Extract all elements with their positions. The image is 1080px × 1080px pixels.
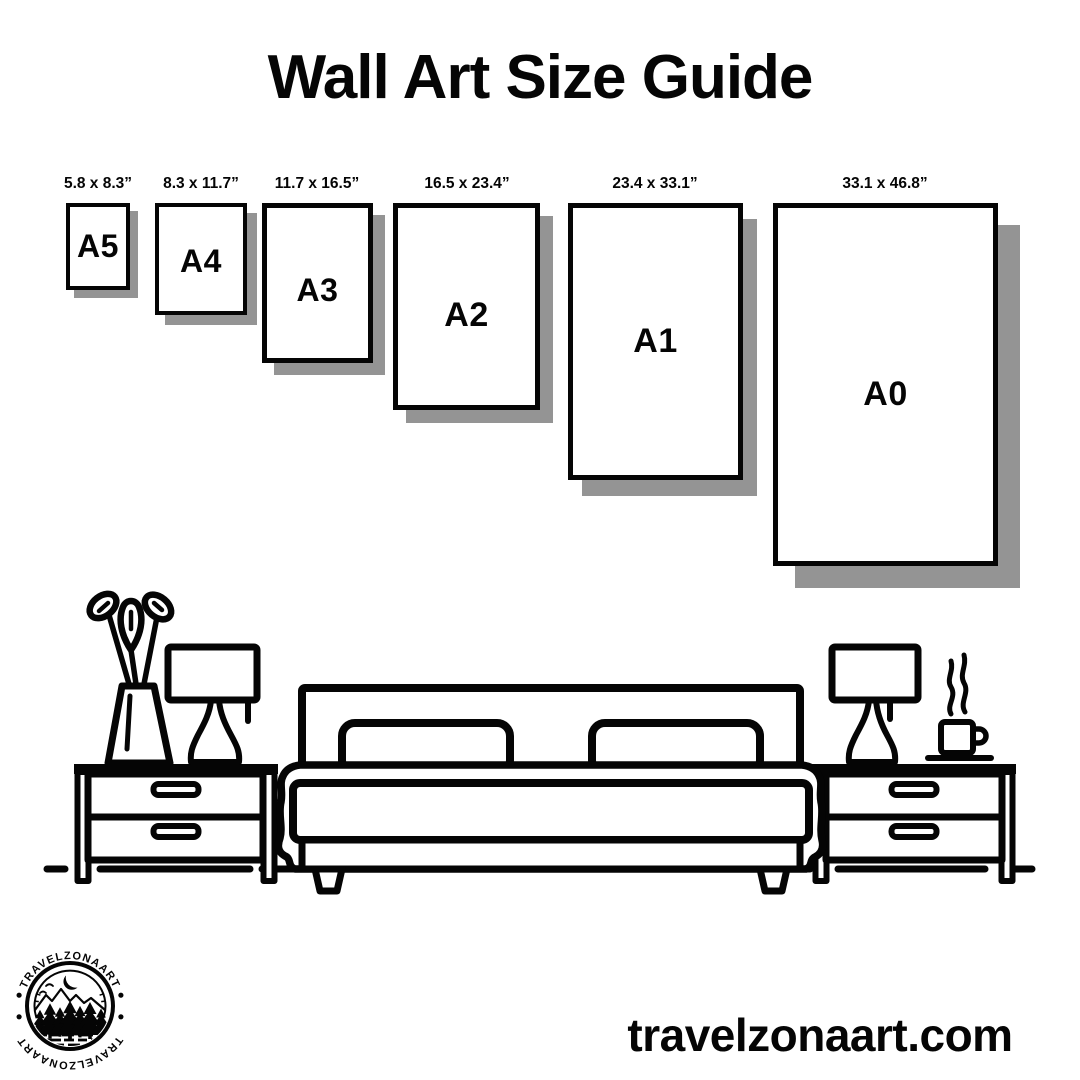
vase <box>108 686 170 763</box>
size-code-a2: A2 <box>444 296 488 335</box>
bed-leg-left <box>315 869 342 891</box>
size-box-a2: A2 <box>393 203 540 410</box>
size-code-a0: A0 <box>863 375 907 414</box>
size-box-a0: A0 <box>773 203 998 566</box>
website-url: travelzonaart.com <box>560 1008 1080 1064</box>
drawer-handle <box>892 784 937 795</box>
size-box-a3: A3 <box>262 203 373 363</box>
size-box-a5: A5 <box>66 203 130 290</box>
nightstand-left <box>74 769 278 881</box>
brand-logo: TRAVELZONAART TRAVELZONAART <box>6 942 134 1070</box>
lamp-shade <box>832 647 918 700</box>
size-label-a1: 23.4 x 33.1” <box>555 172 755 196</box>
size-code-a5: A5 <box>77 228 119 265</box>
size-code-a4: A4 <box>180 243 222 280</box>
nightstand-right <box>812 769 1016 881</box>
bed-leg-right <box>760 869 787 891</box>
lamp-stem <box>191 700 239 762</box>
cup-body <box>941 722 973 753</box>
size-label-a0: 33.1 x 46.8” <box>785 172 985 196</box>
bedroom-illustration <box>40 585 1040 900</box>
size-box-a1: A1 <box>568 203 743 480</box>
size-box-a4: A4 <box>155 203 247 315</box>
bed <box>278 688 822 891</box>
size-label-a2: 16.5 x 23.4” <box>367 172 567 196</box>
bed-base <box>302 840 800 869</box>
page-title: Wall Art Size Guide <box>0 42 1080 113</box>
plant-vase <box>85 589 176 763</box>
size-code-a1: A1 <box>633 322 677 361</box>
lamp-left <box>168 647 257 762</box>
drawer-handle <box>154 784 199 795</box>
size-guide-infographic: Wall Art Size Guide 5.8 x 8.3” 8.3 x 11.… <box>0 0 1080 1080</box>
steam-icon <box>949 655 966 714</box>
lamp-right <box>832 647 918 762</box>
drawer-handle <box>154 826 199 837</box>
coffee-cup <box>928 655 991 758</box>
lamp-shade <box>168 647 257 700</box>
size-code-a3: A3 <box>297 272 339 309</box>
drawer-handle <box>892 826 937 837</box>
mattress-panel <box>293 783 809 840</box>
